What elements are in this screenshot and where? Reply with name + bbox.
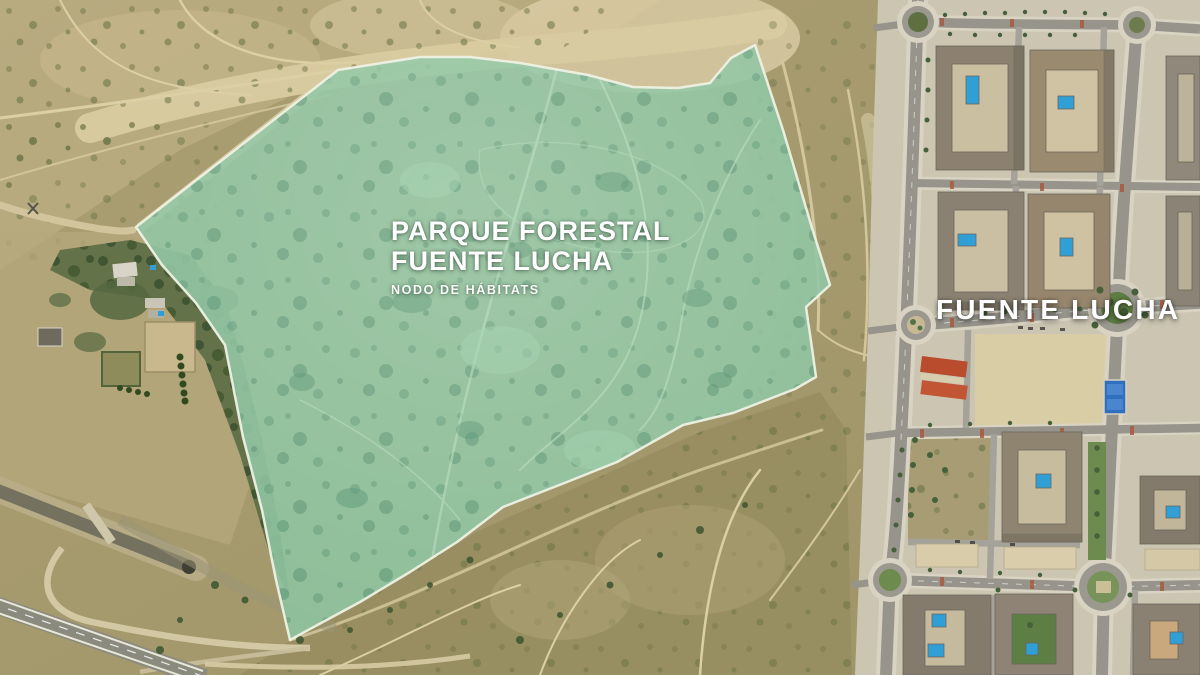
park-title-line1: PARQUE FORESTAL: [391, 216, 671, 246]
city-block: [995, 594, 1073, 675]
aerial-map-canvas: PARQUE FORESTAL FUENTE LUCHA NODO DE HÁB…: [0, 0, 1200, 675]
vacant-sand-lot: [975, 334, 1107, 426]
park-subtitle: NODO DE HÁBITATS: [391, 283, 671, 297]
roundabout: [897, 1, 939, 43]
city-block: [903, 595, 991, 675]
city-block: [936, 46, 1024, 170]
roundabout: [1074, 558, 1132, 616]
city-block: [1030, 50, 1114, 172]
city-block: [1166, 196, 1200, 306]
city-block: [1166, 56, 1200, 180]
city-block: [1133, 604, 1200, 675]
boulevard-median: [1088, 442, 1106, 560]
city-block: [938, 192, 1024, 310]
city-block: [1002, 432, 1082, 542]
city-block: [1140, 476, 1200, 544]
sports-courts: [1104, 380, 1126, 414]
satellite-map: [0, 0, 1200, 675]
district-label: FUENTE LUCHA: [936, 294, 1180, 326]
urban-area: [852, 0, 1200, 675]
roundabout: [896, 305, 936, 345]
park-title-line2: FUENTE LUCHA: [391, 246, 671, 276]
roundabout: [1118, 6, 1156, 44]
park-label: PARQUE FORESTAL FUENTE LUCHA NODO DE HÁB…: [391, 216, 671, 297]
